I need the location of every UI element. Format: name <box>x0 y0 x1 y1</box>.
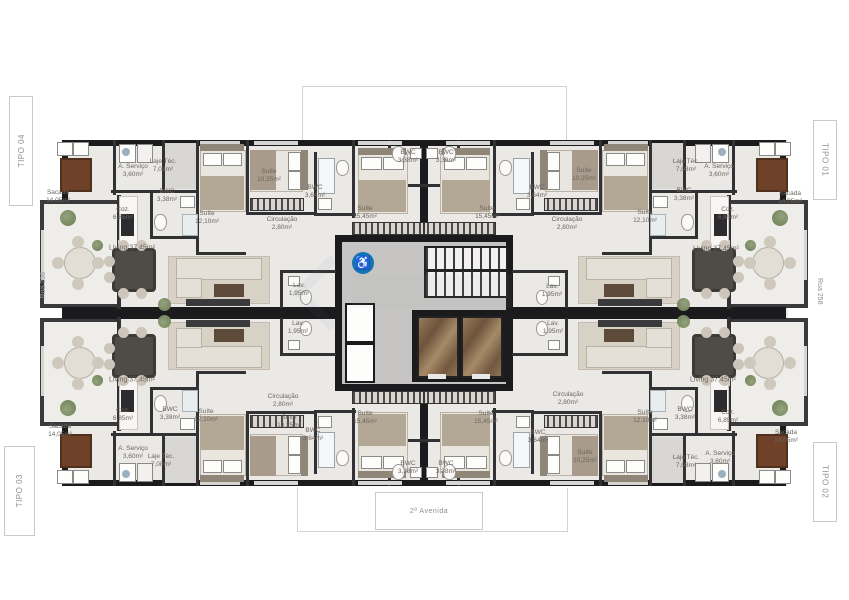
wall-balcony-left <box>804 318 808 426</box>
guide-line <box>566 86 567 140</box>
floor-plan-canvas: ♿ TIPO 04 TIPO 03 TIPO 01 TIPO 02 2ª Ave… <box>0 0 849 600</box>
guide-line <box>297 531 568 532</box>
wall-balcony-left <box>804 200 808 308</box>
guide-line <box>297 488 298 532</box>
guide-box-avenida: 2ª Avenida <box>375 492 483 530</box>
duct <box>345 303 375 343</box>
elevator-cab <box>461 316 503 378</box>
accessibility-icon: ♿ <box>352 252 374 274</box>
elevator-door <box>428 374 446 379</box>
guide-box-tipo02: TIPO 02 <box>813 442 837 522</box>
stairs <box>424 246 508 298</box>
wall-balcony-left <box>40 318 44 426</box>
unit-label-tipo02: TIPO 02 <box>821 465 830 498</box>
window <box>804 346 807 396</box>
guide-line <box>567 488 568 532</box>
window <box>41 346 44 396</box>
street-label-left: Rua 256 <box>40 272 47 298</box>
elevator-door <box>472 374 490 379</box>
window <box>804 230 807 280</box>
unit-label-tipo01: TIPO 01 <box>821 143 830 176</box>
guide-box-tipo01: TIPO 01 <box>813 120 837 200</box>
duct <box>345 343 375 383</box>
unit-label-tipo03: TIPO 03 <box>15 474 24 507</box>
guide-box-tipo03: TIPO 03 <box>4 446 35 536</box>
unit-label-tipo04: TIPO 04 <box>17 134 26 167</box>
accessibility-glyph: ♿ <box>355 255 371 271</box>
guide-line <box>302 86 303 140</box>
street-label-bottom: 2ª Avenida <box>410 508 448 515</box>
stairs-rail <box>424 269 508 272</box>
street-label-right: Rua 258 <box>816 278 823 304</box>
guide-box-tipo04: TIPO 04 <box>9 96 33 206</box>
elevator-cab <box>417 316 459 378</box>
guide-line <box>302 86 567 87</box>
